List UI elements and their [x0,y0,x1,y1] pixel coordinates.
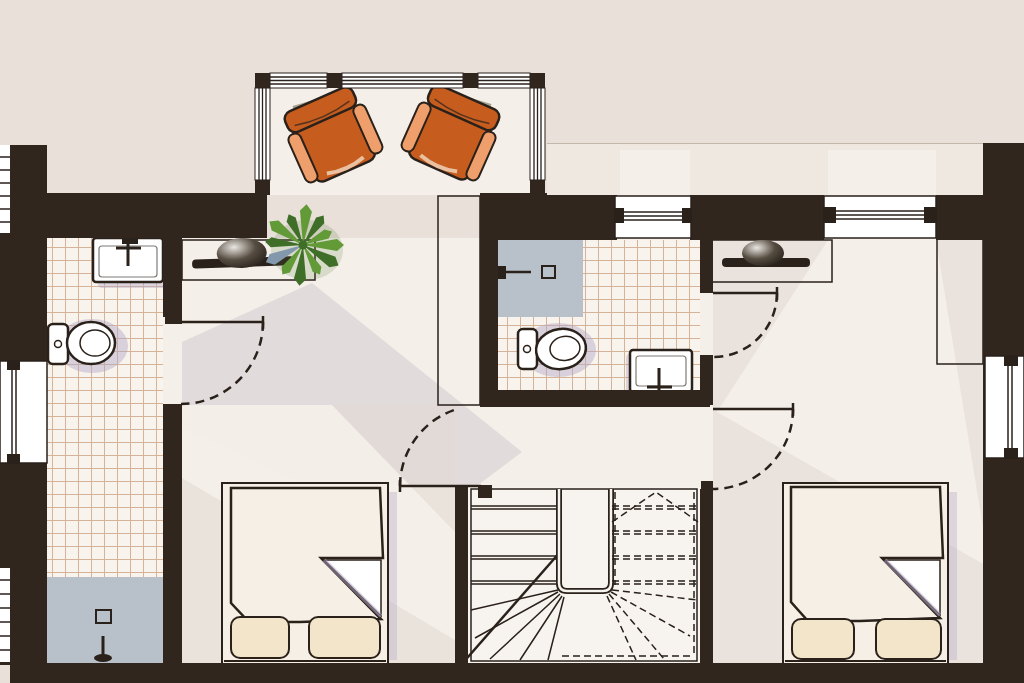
wall-north-1 [545,195,617,240]
bathroom-left [47,237,168,663]
wall-north-left [47,193,267,238]
floor-plan-svg [0,0,1024,683]
wall-bathroom-left-lower [163,404,182,665]
toilet-ensuite [518,323,596,377]
pillow [309,617,380,658]
toilet-bowl [67,322,115,364]
ensuite-window-north [615,196,691,238]
floor-plan-image [0,0,1024,683]
wall-ensuite-west [480,240,498,405]
faucet-icon [122,237,138,244]
stair-floor [468,487,700,663]
double-bed-right [783,483,957,664]
louvre-strip-bottom-left [0,568,10,662]
wall-north-2 [690,195,824,240]
bathroom-left-window-west [0,361,47,463]
window-sill-outside-1 [620,150,690,195]
louvre-strip-top-left [0,145,10,233]
toilet-cistern [48,324,68,364]
double-bed-left [222,483,397,664]
toilet-left [48,319,128,373]
wall-bathroom-left-upper [163,238,182,317]
wall-ensuite-east-upper [700,238,713,293]
bathroom-left-shower-tray [47,577,163,663]
bedroom-right-window-north [824,196,936,238]
wall-ensuite-south [480,390,710,407]
tv-icon [742,240,784,266]
pillow [231,617,289,658]
wall-stairs-east [700,489,713,668]
wall-ensuite-east-lower [700,355,713,405]
window-sill-outside-2 [828,150,936,195]
door-hinge-block [165,317,182,324]
ensuite-bathroom [498,238,700,396]
bathroom-left-tiled-floor [47,238,163,577]
wall-block-balcony-right [480,193,547,240]
balcony-base-post-left [255,179,270,195]
washbasin-ensuite [626,350,692,396]
staircase [461,487,700,665]
toilet-cistern [518,329,537,369]
balcony-base-post-right [530,179,545,195]
ensuite-shower-tray [498,238,583,317]
pillow [792,619,854,659]
wall-stairs-west [455,485,468,668]
wall-north-3 [936,195,985,240]
balcony-corner-post-left [255,73,270,89]
balcony-corner-post-right [530,73,545,89]
bedroom-right-window-east [985,356,1024,458]
wall-south [10,663,985,683]
washbasin-left [93,237,168,288]
pillow [876,619,941,659]
